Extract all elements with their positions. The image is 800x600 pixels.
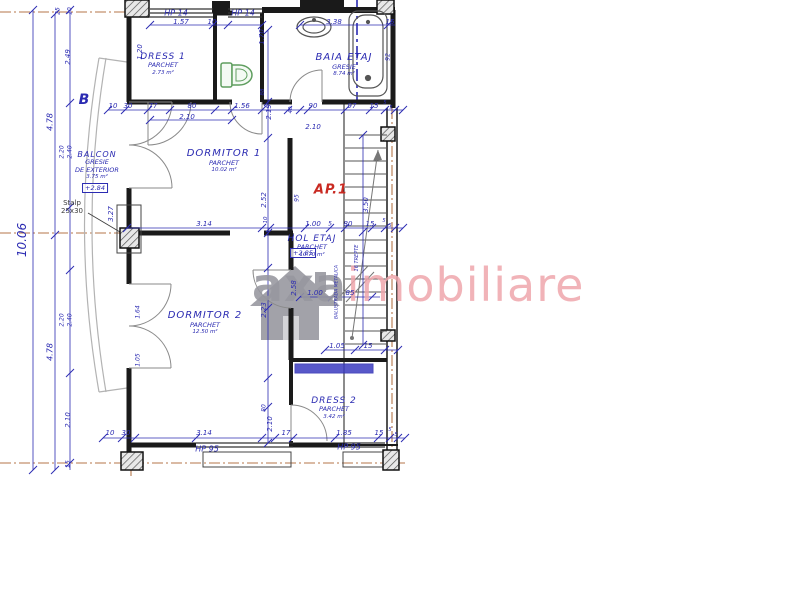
- room-area: 2.73 m²: [140, 70, 186, 76]
- dimension-label: 95: [294, 194, 301, 202]
- dimension-label: 3.27: [107, 206, 115, 222]
- dimension-label: 10: [208, 18, 217, 26]
- room-label-balcon: BALCONGRESIEDE EXTERIOR3.75 m²: [75, 150, 119, 180]
- dimension-label: 2.40: [67, 313, 74, 326]
- room-label-baia: BAIA ETAJGRESIE8.74 m²: [316, 52, 373, 77]
- toilet-icon: [221, 63, 252, 87]
- dimension-label: 5: [383, 100, 386, 106]
- room-label-hol: HOL ETAJPARCHET10.70 m²: [288, 234, 337, 258]
- dimension-label: 1.05: [329, 342, 345, 350]
- annotation: Stalp: [63, 199, 81, 207]
- dimension-label: 77: [149, 102, 158, 110]
- dimension-label: 10: [106, 429, 115, 437]
- dimension-label: 1.00: [307, 289, 323, 297]
- dimension-label: 3.50: [362, 197, 370, 213]
- dimension-label: 15: [65, 460, 72, 468]
- dimension-label: 10: [67, 7, 74, 15]
- dimension-label: 25: [55, 7, 62, 15]
- dimension-label: 15: [370, 102, 379, 110]
- dimension-label: 10: [263, 217, 269, 224]
- room-finish: DE EXTERIOR: [75, 167, 119, 174]
- room-area: 10.02 m²: [187, 167, 262, 173]
- dimension-label: 90: [309, 102, 318, 110]
- dimension-label: 15: [364, 342, 373, 350]
- room-label-dress2: DRESS 2PARCHET3.42 m²: [311, 396, 357, 420]
- dimension-label: 88: [260, 89, 266, 96]
- closet-band: [295, 364, 373, 373]
- dimension-label: 2.20: [59, 145, 66, 158]
- dimension-label: 30: [122, 429, 131, 437]
- room-area: 3.75 m²: [75, 174, 119, 180]
- dimension-label: 15: [386, 18, 395, 26]
- dimension-label: 17: [282, 429, 291, 437]
- staircase: [340, 135, 387, 344]
- annotation: BALUSTRADA METALICA: [335, 265, 340, 319]
- room-label-dress1: DRESS 1PARCHET2.73 m²: [140, 52, 186, 76]
- dimension-label: 5: [328, 221, 332, 228]
- floorplan-canvas: axaimobiliare HP 14HP 141.57103.38151030…: [0, 0, 800, 600]
- dimension-label: 3.14: [196, 220, 212, 228]
- dimension-label: 2.19: [265, 104, 273, 120]
- dimension-label: 2.52: [260, 192, 268, 208]
- dimension-label: 5: [394, 432, 397, 438]
- annotation: B: [79, 92, 90, 108]
- dimension-label: 2.23: [260, 302, 268, 318]
- dimension-label: 40: [288, 107, 294, 114]
- room-finish: PARCHET: [311, 406, 357, 413]
- room-area: 10.70 m²: [288, 252, 337, 258]
- dimension-label: HP 95: [195, 445, 219, 454]
- dimension-label: 5: [388, 223, 391, 229]
- room-finish: PARCHET: [168, 322, 243, 329]
- dimension-label: 1.05: [135, 353, 142, 366]
- dimension-label: 1.57: [173, 18, 189, 26]
- dimension-label: 2.10: [266, 416, 274, 432]
- dimension-label: 10.06: [15, 223, 29, 257]
- room-area: 12.50 m²: [168, 329, 243, 335]
- dimension-label: 15: [375, 429, 384, 437]
- dimension-label: 3.38: [326, 18, 342, 26]
- dimension-label: HP 14: [164, 9, 188, 18]
- room-name: DORMITOR 1: [187, 148, 262, 160]
- dimension-label: 1.85: [336, 429, 352, 437]
- dimension-label: 80: [344, 220, 353, 228]
- dimension-label: 4.78: [46, 343, 55, 361]
- dimension-label: HP 14: [231, 9, 255, 18]
- balcony-curve: [85, 58, 128, 392]
- annotation: +2.84: [82, 183, 108, 193]
- dimension-label: 92: [385, 53, 392, 61]
- dimension-label: 5: [389, 105, 392, 111]
- dimension-label: 1.70: [258, 29, 266, 45]
- dimension-label: 2.10: [179, 113, 195, 121]
- dimension-label: 5: [382, 218, 385, 224]
- dimension-label: 85: [346, 289, 355, 297]
- room-name: DORMITOR 2: [168, 310, 243, 322]
- dimension-label: 3.14: [196, 429, 212, 437]
- annotation: 16 TREPTE: [354, 245, 360, 272]
- room-finish: PARCHET: [140, 62, 186, 69]
- dimension-label: 30: [124, 102, 133, 110]
- dimension-label: HP 95: [337, 443, 361, 452]
- room-label-dorm1: DORMITOR 1PARCHET10.02 m²: [187, 148, 262, 173]
- room-area: 3.42 m²: [311, 414, 357, 420]
- dimension-label: 15: [366, 220, 375, 228]
- dimension-label: 2.49: [64, 49, 72, 65]
- room-finish: PARCHET: [187, 160, 262, 167]
- annotation: 25x30: [61, 207, 83, 215]
- dimension-label: 2.10: [64, 412, 72, 428]
- dimension-label: 2.40: [67, 145, 74, 158]
- dimension-label: 1.56: [234, 102, 250, 110]
- dimension-label: 2.10: [305, 123, 321, 131]
- room-label-dorm2: DORMITOR 2PARCHET12.50 m²: [168, 310, 243, 335]
- floorplan-linework: [0, 0, 800, 600]
- room-area: 8.74 m²: [316, 71, 373, 77]
- dimension-label: 97: [348, 102, 357, 110]
- room-finish: GRESIE: [316, 64, 373, 71]
- dimension-label: 80: [261, 404, 268, 412]
- room-finish: PARCHET: [288, 244, 337, 251]
- annotation: AP.1: [314, 183, 348, 198]
- dimension-label: 2.20: [59, 313, 66, 326]
- dimension-label: 80: [188, 102, 197, 110]
- dimension-label: 2.58: [290, 280, 298, 296]
- dimension-label: 5: [388, 427, 391, 433]
- dimension-label: 4.78: [46, 113, 55, 131]
- dimension-label: 1.00: [305, 220, 321, 228]
- dimension-label: 10: [109, 102, 118, 110]
- room-name: BAIA ETAJ: [316, 52, 373, 64]
- stair-direction-arrow: [340, 150, 382, 340]
- dimension-label: 1.64: [135, 305, 142, 318]
